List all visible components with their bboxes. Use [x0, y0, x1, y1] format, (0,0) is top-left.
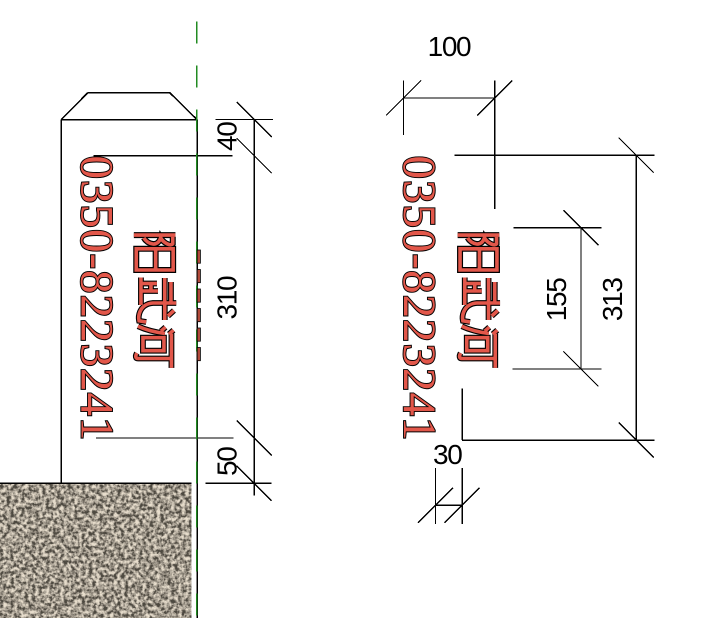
svg-text:313: 313: [597, 278, 628, 321]
svg-text:30: 30: [433, 439, 462, 470]
svg-text:0350-8223241: 0350-8223241: [393, 156, 445, 441]
svg-text:100: 100: [428, 31, 471, 62]
svg-text:155: 155: [541, 278, 572, 321]
svg-text:50: 50: [212, 447, 243, 476]
svg-text:0350-8223241: 0350-8223241: [71, 156, 123, 441]
svg-text:310: 310: [211, 276, 242, 319]
svg-text:40: 40: [211, 122, 242, 151]
